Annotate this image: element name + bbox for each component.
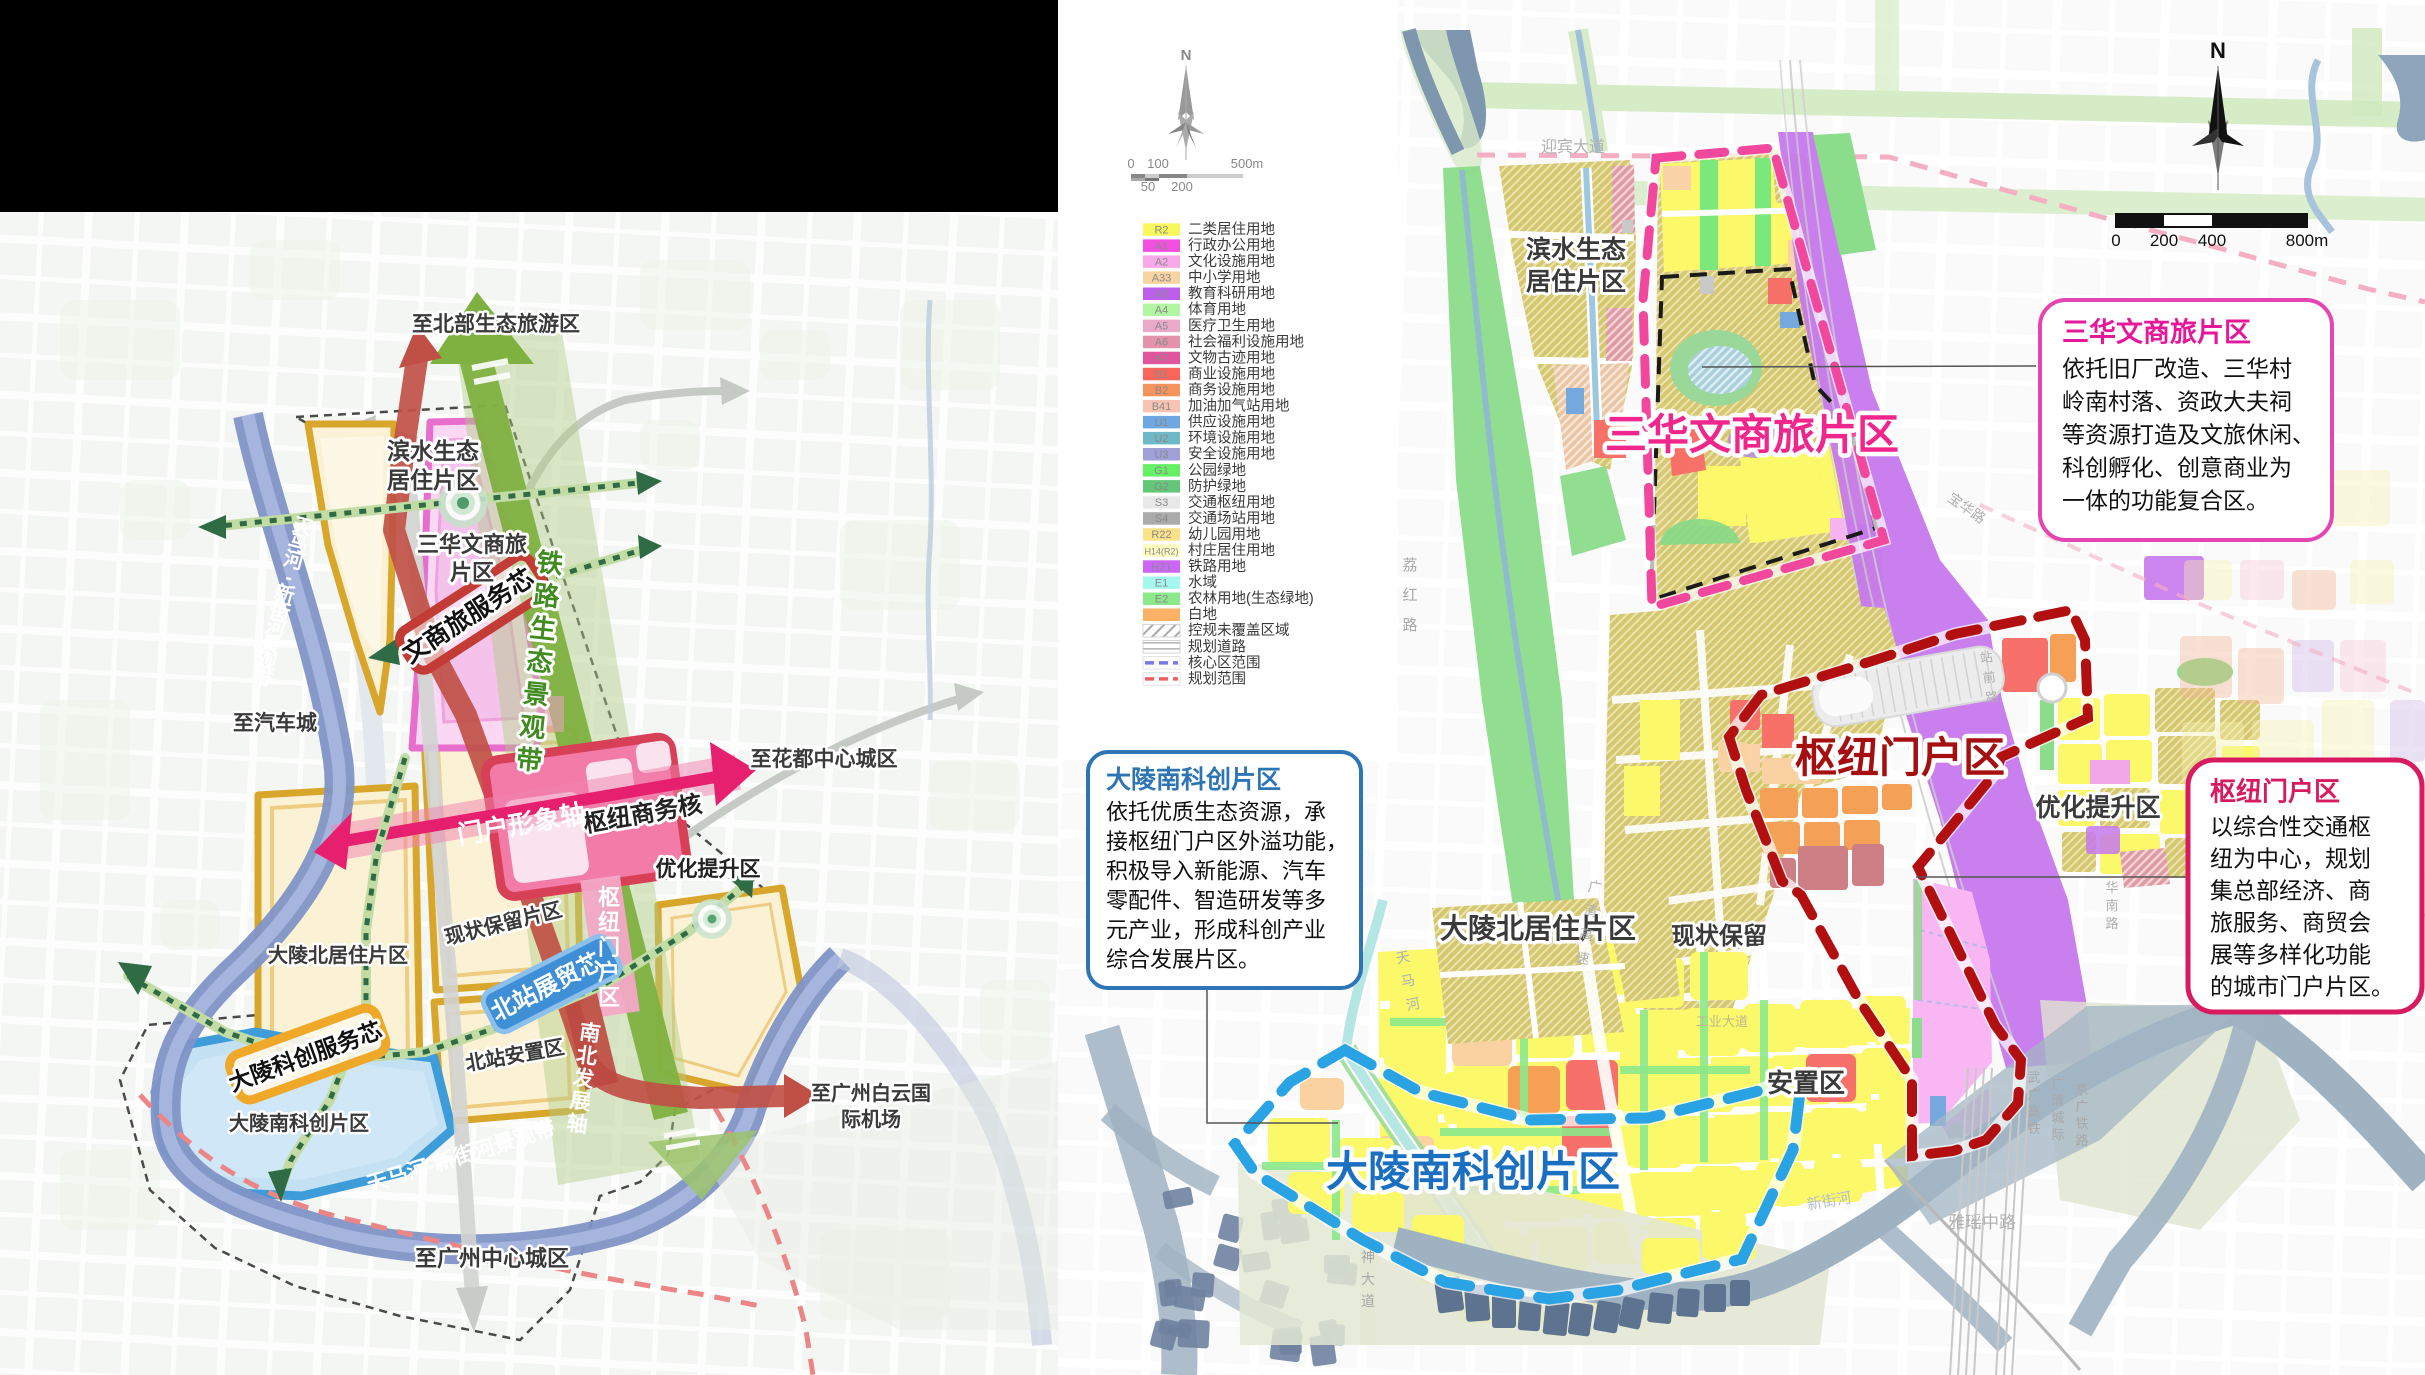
- svg-text:态: 态: [525, 645, 554, 678]
- svg-text:红: 红: [1402, 587, 1417, 604]
- svg-text:800m: 800m: [2286, 231, 2329, 250]
- svg-text:纽为中心，规划: 纽为中心，规划: [2210, 846, 2371, 872]
- svg-text:教育科研用地: 教育科研用地: [1188, 285, 1275, 302]
- svg-text:接枢纽门户区外溢功能，: 接枢纽门户区外溢功能，: [1106, 829, 1348, 854]
- svg-text:三华文商旅片区: 三华文商旅片区: [1605, 411, 1899, 458]
- svg-text:高: 高: [2027, 1104, 2040, 1119]
- svg-text:三华文商旅片区: 三华文商旅片区: [2062, 316, 2251, 347]
- svg-text:展等多样化功能: 展等多样化功能: [2210, 942, 2371, 968]
- svg-text:U3: U3: [1154, 449, 1168, 461]
- svg-text:规划道路: 规划道路: [1188, 638, 1246, 655]
- svg-text:优化提升区: 优化提升区: [2035, 794, 2160, 822]
- svg-text:A2: A2: [1155, 256, 1168, 268]
- svg-text:安全设施用地: 安全设施用地: [1188, 445, 1275, 463]
- svg-text:武: 武: [2027, 1070, 2040, 1085]
- svg-text:A1: A1: [1155, 240, 1168, 252]
- svg-text:北: 北: [575, 1043, 599, 1069]
- svg-text:依托旧厂改造、三华村: 依托旧厂改造、三华村: [2062, 355, 2292, 381]
- svg-text:荔: 荔: [1402, 557, 1417, 574]
- svg-text:的城市门户片区。: 的城市门户片区。: [2210, 974, 2394, 1000]
- svg-text:铁: 铁: [535, 547, 564, 580]
- svg-text:100: 100: [1147, 156, 1169, 171]
- svg-text:雅瑶中路: 雅瑶中路: [1948, 1213, 2016, 1232]
- svg-text:门: 门: [598, 935, 620, 960]
- svg-text:城: 城: [2051, 1110, 2064, 1125]
- svg-text:200: 200: [2150, 231, 2178, 250]
- svg-text:R2: R2: [1154, 224, 1168, 236]
- svg-text:户: 户: [598, 960, 620, 985]
- svg-text:以综合性交通枢: 以综合性交通枢: [2210, 814, 2371, 840]
- svg-text:优化提升区: 优化提升区: [656, 857, 761, 881]
- svg-text:清: 清: [2051, 1093, 2064, 1108]
- svg-text:0: 0: [2111, 231, 2120, 250]
- svg-text:公园绿地: 公园绿地: [1188, 462, 1246, 479]
- svg-text:中小学用地: 中小学用地: [1188, 269, 1261, 286]
- svg-text:A7: A7: [1155, 353, 1168, 365]
- svg-text:环境设施用地: 环境设施用地: [1188, 429, 1275, 447]
- svg-text:A6: A6: [1155, 337, 1168, 349]
- svg-text:枢: 枢: [598, 885, 620, 910]
- svg-text:纽: 纽: [598, 910, 620, 935]
- svg-text:南: 南: [2105, 898, 2118, 913]
- svg-text:滨水生态: 滨水生态: [1526, 235, 1626, 264]
- svg-text:E2: E2: [1155, 594, 1168, 606]
- svg-text:医疗卫生用地: 医疗卫生用地: [1188, 317, 1275, 334]
- svg-text:H21: H21: [1151, 561, 1171, 573]
- svg-text:居住片区: 居住片区: [1526, 267, 1626, 296]
- svg-text:0: 0: [1127, 156, 1134, 171]
- svg-text:铁: 铁: [2075, 1116, 2088, 1131]
- svg-text:交通枢纽用地: 交通枢纽用地: [1188, 493, 1275, 511]
- svg-text:片区: 片区: [450, 560, 494, 585]
- svg-text:元产业，形成科创产业: 元产业，形成科创产业: [1106, 918, 1326, 943]
- svg-text:广: 广: [2075, 1099, 2088, 1114]
- svg-text:至广州白云国: 至广州白云国: [811, 1081, 931, 1105]
- svg-text:白地: 白地: [1188, 606, 1217, 623]
- svg-text:景: 景: [522, 678, 551, 711]
- svg-text:防护绿地: 防护绿地: [1188, 478, 1246, 495]
- svg-text:商业设施用地: 商业设施用地: [1188, 366, 1275, 383]
- svg-text:大陵北居住片区: 大陵北居住片区: [268, 943, 408, 967]
- svg-text:N: N: [1181, 47, 1192, 64]
- svg-text:综合发展片区。: 综合发展片区。: [1106, 947, 1260, 972]
- svg-text:路: 路: [2075, 1133, 2088, 1148]
- svg-text:京: 京: [2075, 1082, 2088, 1097]
- svg-text:现状保留: 现状保留: [1671, 923, 1767, 950]
- svg-text:路: 路: [2105, 916, 2118, 931]
- svg-text:B1: B1: [1155, 369, 1168, 381]
- svg-text:展: 展: [568, 1089, 592, 1115]
- svg-text:道: 道: [1361, 1293, 1375, 1309]
- svg-text:E1: E1: [1155, 577, 1168, 589]
- svg-text:集总部经济、商: 集总部经济、商: [2210, 878, 2371, 904]
- svg-text:商务设施用地: 商务设施用地: [1188, 382, 1275, 399]
- svg-text:至广州中心城区: 至广州中心城区: [415, 1246, 569, 1271]
- svg-text:神: 神: [1361, 1249, 1375, 1265]
- svg-text:200: 200: [1171, 179, 1193, 194]
- svg-text:科创孵化、创意商业为: 科创孵化、创意商业为: [2062, 454, 2292, 480]
- svg-text:区: 区: [598, 985, 620, 1010]
- svg-text:供应设施用地: 供应设施用地: [1188, 413, 1275, 431]
- svg-text:50: 50: [1141, 179, 1155, 194]
- svg-text:发: 发: [571, 1065, 597, 1092]
- svg-text:际: 际: [2051, 1127, 2064, 1142]
- svg-text:路: 路: [1402, 617, 1417, 634]
- svg-text:加油加气站用地: 加油加气站用地: [1188, 398, 1290, 415]
- svg-text:U2: U2: [1154, 433, 1168, 445]
- svg-text:积极导入新能源、汽车: 积极导入新能源、汽车: [1106, 859, 1326, 884]
- svg-text:交通场站用地: 交通场站用地: [1188, 509, 1275, 527]
- svg-text:枢纽门户区: 枢纽门户区: [2210, 777, 2340, 807]
- svg-text:路: 路: [1984, 689, 1999, 706]
- svg-text:A33: A33: [1152, 272, 1172, 284]
- svg-text:滨水生态: 滨水生态: [387, 438, 479, 464]
- svg-text:高: 高: [1578, 925, 1595, 943]
- svg-text:三华文商旅: 三华文商旅: [417, 532, 527, 557]
- svg-text:等资源打造及文旅休闲、: 等资源打造及文旅休闲、: [2062, 421, 2315, 447]
- svg-text:带: 带: [515, 744, 544, 777]
- svg-text:际机场: 际机场: [841, 1107, 901, 1131]
- svg-text:G2: G2: [1154, 481, 1169, 493]
- svg-text:400: 400: [2198, 231, 2226, 250]
- svg-text:行政办公用地: 行政办公用地: [1188, 237, 1275, 254]
- svg-text:R22: R22: [1151, 529, 1171, 541]
- svg-text:南: 南: [578, 1020, 602, 1047]
- svg-text:速: 速: [1574, 949, 1591, 967]
- svg-text:一体的功能复合区。: 一体的功能复合区。: [2062, 487, 2269, 513]
- svg-text:居住片区: 居住片区: [387, 467, 479, 493]
- svg-text:U1: U1: [1154, 417, 1168, 429]
- svg-text:G1: G1: [1154, 465, 1169, 477]
- svg-text:A5: A5: [1155, 321, 1168, 333]
- svg-text:500m: 500m: [1231, 156, 1264, 171]
- svg-text:幼儿园用地: 幼儿园用地: [1188, 526, 1261, 543]
- svg-text:广: 广: [2027, 1087, 2040, 1102]
- svg-text:规划范围: 规划范围: [1188, 670, 1246, 687]
- svg-text:S3: S3: [1155, 497, 1168, 509]
- svg-text:S4: S4: [1155, 513, 1168, 525]
- svg-text:观: 观: [518, 711, 547, 744]
- svg-text:轴: 轴: [565, 1111, 589, 1138]
- svg-text:大: 大: [1361, 1271, 1375, 1287]
- svg-text:B41: B41: [1152, 401, 1172, 413]
- svg-text:零配件、智造研发等多: 零配件、智造研发等多: [1106, 888, 1326, 913]
- svg-text:大陵北居住片区: 大陵北居住片区: [1440, 912, 1636, 944]
- svg-text:广: 广: [1587, 878, 1604, 896]
- svg-text:二类居住用地: 二类居住用地: [1188, 221, 1275, 238]
- svg-text:A3: A3: [1155, 289, 1168, 301]
- svg-text:至花都中心城区: 至花都中心城区: [751, 747, 898, 771]
- svg-text:铁路用地: 铁路用地: [1188, 558, 1246, 575]
- svg-text:华: 华: [2105, 880, 2118, 895]
- svg-text:社会福利设施用地: 社会福利设施用地: [1188, 333, 1304, 350]
- svg-text:路: 路: [532, 580, 562, 613]
- svg-text:生: 生: [529, 612, 558, 645]
- svg-text:水域: 水域: [1188, 574, 1217, 591]
- svg-text:大陵南科创片区: 大陵南科创片区: [1326, 1148, 1620, 1195]
- svg-text:大陵南科创片区: 大陵南科创片区: [1106, 766, 1281, 794]
- svg-text:至北部生态旅游区: 至北部生态旅游区: [412, 312, 580, 336]
- svg-text:铁: 铁: [2027, 1121, 2040, 1136]
- svg-text:农林用地(生态绿地): 农林用地(生态绿地): [1188, 590, 1314, 607]
- svg-text:前: 前: [1982, 669, 1997, 686]
- svg-text:岭南村落、资政大夫祠: 岭南村落、资政大夫祠: [2062, 388, 2292, 414]
- svg-text:安置区: 安置区: [1767, 1068, 1845, 1098]
- svg-text:迎宾大道: 迎宾大道: [1541, 138, 1605, 156]
- svg-text:控规未覆盖区域: 控规未覆盖区域: [1188, 622, 1290, 639]
- svg-text:文化设施用地: 文化设施用地: [1188, 253, 1275, 270]
- svg-text:A4: A4: [1155, 305, 1168, 317]
- svg-text:核心区范围: 核心区范围: [1188, 654, 1261, 671]
- svg-text:大陵南科创片区: 大陵南科创片区: [229, 1111, 369, 1135]
- svg-text:体育用地: 体育用地: [1188, 301, 1246, 318]
- svg-text:N: N: [2210, 38, 2226, 63]
- svg-text:广: 广: [2051, 1076, 2064, 1091]
- svg-text:站: 站: [1979, 649, 1994, 666]
- svg-text:村庄居住用地: 村庄居住用地: [1188, 541, 1275, 559]
- svg-text:工业大道: 工业大道: [1696, 1014, 1748, 1029]
- svg-text:旅服务、商贸会: 旅服务、商贸会: [2210, 910, 2371, 936]
- svg-text:文物古迹用地: 文物古迹用地: [1188, 349, 1275, 366]
- svg-text:枢纽门户区: 枢纽门户区: [1795, 734, 2005, 781]
- svg-text:至汽车城: 至汽车城: [233, 711, 317, 735]
- svg-text:清: 清: [1582, 902, 1599, 920]
- svg-text:B2: B2: [1155, 385, 1168, 397]
- svg-text:H14(R2): H14(R2): [1144, 546, 1178, 556]
- svg-text:依托优质生态资源，承: 依托优质生态资源，承: [1106, 800, 1326, 825]
